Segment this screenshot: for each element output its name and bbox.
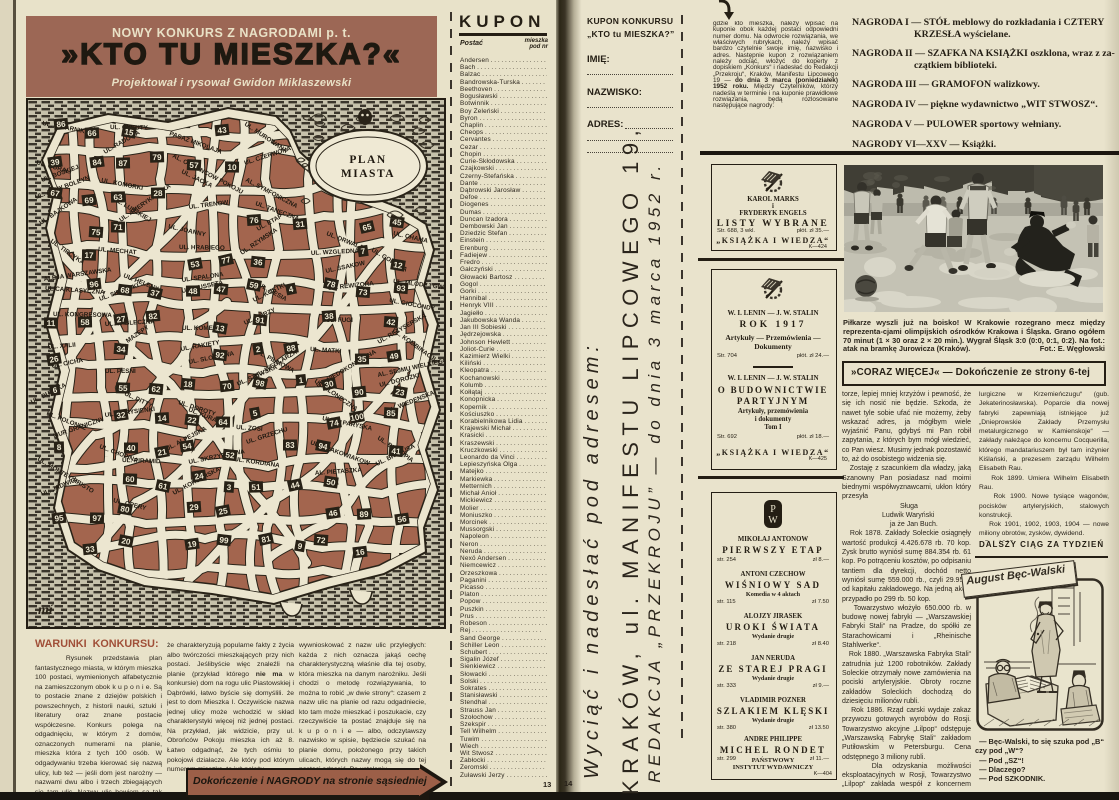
svg-text:UL. HRABIEGO: UL. HRABIEGO [179, 244, 225, 252]
svg-text:75: 75 [91, 228, 101, 238]
svg-text:86: 86 [56, 120, 66, 130]
svg-text:52: 52 [225, 451, 235, 461]
svg-text:76: 76 [249, 216, 259, 226]
svg-text:56: 56 [397, 514, 408, 524]
svg-text:85: 85 [386, 409, 396, 418]
svg-text:69: 69 [84, 195, 94, 205]
svg-text:54: 54 [182, 441, 193, 451]
svg-text:83: 83 [285, 441, 295, 450]
svg-text:63: 63 [113, 193, 123, 202]
svg-text:92: 92 [215, 350, 226, 360]
svg-text:29: 29 [189, 503, 199, 513]
svg-text:82: 82 [148, 312, 158, 322]
svg-text:UL. PESNI: UL. PESNI [105, 368, 136, 375]
svg-text:19: 19 [187, 539, 198, 549]
svg-text:8: 8 [57, 443, 62, 452]
svg-text:42: 42 [386, 318, 396, 328]
svg-text:41: 41 [391, 447, 401, 457]
svg-text:71: 71 [113, 223, 123, 232]
svg-text:57: 57 [189, 161, 199, 170]
svg-text:22: 22 [187, 415, 198, 425]
svg-text:11: 11 [47, 319, 56, 328]
svg-text:38: 38 [324, 312, 334, 322]
svg-text:MIASTA: MIASTA [341, 168, 395, 180]
svg-text:14: 14 [157, 414, 167, 423]
svg-text:60: 60 [125, 475, 135, 484]
svg-text:70: 70 [222, 381, 232, 391]
svg-text:24: 24 [194, 471, 205, 481]
svg-text:58: 58 [80, 318, 90, 327]
svg-text:10: 10 [227, 163, 237, 172]
svg-text:16: 16 [355, 547, 366, 557]
svg-text:28: 28 [153, 189, 163, 198]
svg-text:66: 66 [87, 129, 97, 138]
svg-text:34: 34 [116, 345, 126, 355]
svg-text:91: 91 [255, 316, 265, 326]
svg-text:64: 64 [218, 418, 228, 427]
svg-text:W: W [768, 515, 778, 526]
svg-text:35: 35 [357, 355, 367, 364]
svg-text:UL. PIRAMID: UL. PIRAMID [122, 457, 161, 465]
svg-text:32: 32 [116, 410, 127, 420]
svg-text:PLAN: PLAN [349, 154, 386, 166]
svg-text:48: 48 [188, 287, 198, 296]
svg-text:95: 95 [54, 513, 65, 523]
svg-text:27: 27 [116, 314, 127, 324]
svg-text:43: 43 [217, 125, 227, 135]
svg-text:39: 39 [50, 157, 61, 167]
svg-text:50: 50 [326, 477, 337, 487]
svg-text:47: 47 [216, 285, 226, 295]
svg-text:33: 33 [85, 544, 95, 554]
svg-text:36: 36 [253, 258, 263, 268]
svg-text:17: 17 [84, 251, 94, 260]
svg-text:93: 93 [396, 284, 406, 294]
svg-text:73: 73 [358, 288, 368, 298]
svg-text:18: 18 [183, 380, 193, 390]
svg-text:99: 99 [219, 535, 230, 545]
svg-text:40: 40 [126, 444, 136, 453]
svg-text:84: 84 [92, 157, 103, 167]
svg-text:89: 89 [359, 510, 369, 519]
svg-text:79: 79 [152, 153, 162, 162]
svg-text:96: 96 [89, 279, 99, 289]
svg-text:68: 68 [120, 285, 131, 295]
svg-text:46: 46 [328, 508, 339, 518]
svg-text:31: 31 [295, 220, 305, 230]
svg-text:mí: mí [38, 603, 54, 618]
svg-text:87: 87 [118, 159, 128, 168]
svg-text:67: 67 [50, 188, 61, 198]
svg-text:90: 90 [354, 387, 364, 397]
svg-text:72: 72 [316, 536, 326, 546]
svg-text:P: P [770, 504, 776, 515]
svg-text:55: 55 [118, 384, 128, 393]
svg-text:62: 62 [151, 385, 161, 395]
svg-text:49: 49 [389, 351, 400, 361]
svg-text:97: 97 [92, 514, 102, 523]
svg-text:51: 51 [251, 483, 261, 492]
